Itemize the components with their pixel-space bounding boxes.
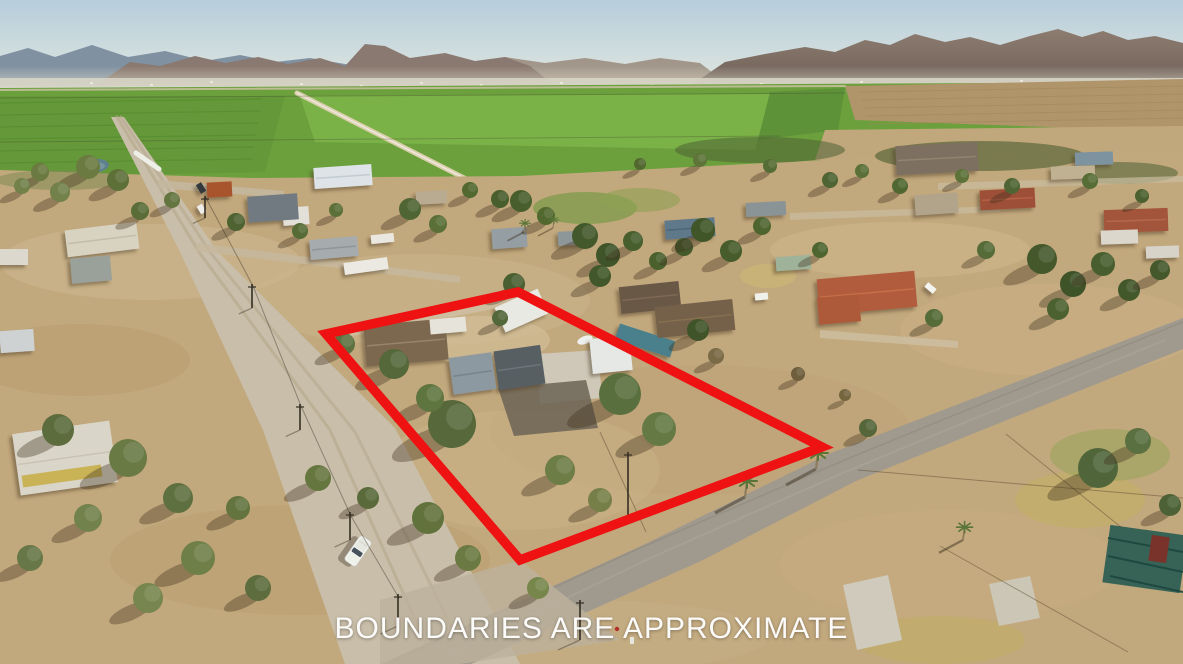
shed — [416, 190, 448, 205]
distant-town-speck — [420, 82, 423, 84]
tree-highlight — [760, 218, 770, 228]
tree-highlight — [518, 192, 530, 204]
distant-town-speck — [860, 81, 863, 83]
tree-highlight — [698, 154, 706, 162]
distant-town-speck — [90, 82, 93, 84]
aerial-photo-canvas — [0, 0, 1183, 664]
tree-highlight — [796, 368, 804, 376]
tree-highlight — [544, 208, 554, 218]
tree-highlight — [818, 243, 827, 252]
corral-equipment — [1148, 535, 1169, 563]
tree-highlight — [234, 214, 244, 224]
tree-highlight — [695, 321, 707, 333]
tree-highlight — [700, 220, 713, 233]
tree-highlight — [255, 577, 269, 591]
tree-highlight — [427, 386, 442, 401]
tree-highlight — [315, 467, 329, 481]
tree-highlight — [436, 216, 446, 226]
tree-highlight — [1158, 262, 1169, 273]
distant-town-speck — [300, 83, 303, 85]
tree-highlight — [655, 415, 674, 434]
tree-highlight — [1135, 430, 1149, 444]
tree-highlight — [535, 579, 547, 591]
tree-highlight — [639, 159, 646, 166]
house — [914, 193, 958, 216]
tree-highlight — [424, 504, 442, 522]
tree-highlight — [556, 457, 573, 474]
house — [491, 227, 527, 249]
tree-highlight — [85, 157, 98, 170]
tree-highlight — [960, 170, 968, 178]
building — [0, 249, 28, 265]
ground-patches-patch — [600, 188, 680, 212]
orange-barn — [207, 181, 233, 197]
pedestrian-speck — [630, 637, 634, 644]
stop-sign — [615, 627, 619, 631]
tree-highlight — [468, 183, 477, 192]
tree-highlight — [54, 416, 72, 434]
tree-highlight — [828, 173, 837, 182]
tree-highlight — [174, 485, 191, 502]
tree-highlight — [1100, 254, 1113, 267]
tree-highlight — [1140, 190, 1148, 198]
tree-highlight — [144, 585, 161, 602]
tree-highlight — [932, 310, 942, 320]
tree-highlight — [465, 547, 479, 561]
tree-highlight — [365, 489, 377, 501]
tree-highlight — [138, 203, 148, 213]
tree-highlight — [38, 164, 48, 174]
tree-highlight — [714, 349, 723, 358]
tree-highlight — [390, 351, 407, 368]
tree-highlight — [582, 225, 596, 239]
tree-highlight — [498, 311, 507, 320]
tree-highlight — [1010, 179, 1019, 188]
tree-highlight — [170, 193, 179, 202]
pedestrian — [630, 637, 634, 644]
tree-highlight — [85, 506, 100, 521]
tree-highlight — [58, 184, 69, 195]
tree-highlight — [1038, 246, 1055, 263]
tree-highlight — [498, 191, 508, 201]
shed-white — [1146, 245, 1179, 258]
tree-highlight — [898, 179, 907, 188]
tree-highlight — [298, 224, 307, 233]
tree-highlight — [597, 490, 610, 503]
tree-highlight — [1088, 174, 1097, 183]
distant-town-speck — [150, 84, 153, 86]
tree-highlight — [235, 498, 248, 511]
tree-highlight — [860, 165, 868, 173]
tree-highlight — [334, 204, 342, 212]
spanish-wing — [817, 294, 861, 325]
tree-highlight — [20, 179, 29, 188]
tree-highlight — [615, 376, 638, 399]
aerial-listing-photo: BOUNDARIES ARE APPROXIMATE — [0, 0, 1183, 664]
ground-patches-patch — [0, 224, 300, 300]
tree-highlight — [768, 160, 776, 168]
distant-town-speck — [210, 81, 213, 83]
tree-highlight — [194, 544, 213, 563]
gray-house — [70, 255, 112, 283]
tree-highlight — [844, 390, 851, 397]
tree-highlight — [27, 547, 41, 561]
tree-highlight — [1055, 300, 1067, 312]
distant-town-speck — [560, 82, 563, 84]
tree-highlight — [631, 233, 642, 244]
tree-highlight — [984, 242, 994, 252]
tree-highlight — [341, 335, 353, 347]
tree-highlight — [446, 404, 472, 430]
tree-highlight — [511, 275, 523, 287]
van-white — [755, 292, 769, 300]
carport — [429, 316, 466, 334]
building — [0, 329, 35, 353]
gray-house — [247, 193, 299, 222]
shed-white — [1101, 229, 1138, 244]
tree-highlight — [866, 420, 876, 430]
distant-town-speck — [1020, 80, 1023, 82]
tree-highlight — [1167, 496, 1179, 508]
tree-highlight — [407, 200, 419, 212]
tree-highlight — [597, 267, 609, 279]
house — [746, 201, 787, 217]
tree-highlight — [115, 171, 127, 183]
blue-metal-barn — [1075, 151, 1113, 165]
tree-highlight — [123, 442, 144, 463]
